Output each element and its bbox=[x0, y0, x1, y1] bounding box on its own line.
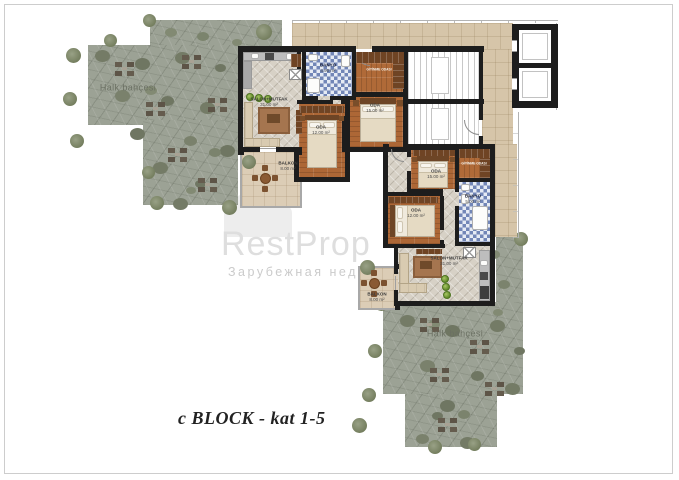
balcony-plant bbox=[242, 155, 256, 169]
toilet bbox=[341, 55, 350, 67]
tree bbox=[66, 48, 81, 63]
room-label-salon-lower: SALON+MUTFAK 31.00 m² bbox=[430, 257, 467, 268]
tree bbox=[143, 14, 156, 27]
wall-segment bbox=[455, 182, 459, 192]
garden-seating bbox=[182, 55, 189, 60]
blanket bbox=[361, 118, 395, 141]
elevator-door bbox=[512, 78, 517, 90]
pillow bbox=[420, 163, 432, 168]
closet bbox=[480, 158, 490, 178]
wall-segment bbox=[407, 149, 411, 157]
closet bbox=[459, 149, 490, 158]
room-area: 4.90 m² bbox=[320, 69, 336, 74]
wall-segment bbox=[455, 178, 492, 182]
wall-segment bbox=[302, 96, 318, 100]
room-label-oda12-upper: ODA 12.00 m² bbox=[312, 126, 330, 137]
nightstand bbox=[450, 157, 455, 162]
wall-segment bbox=[294, 177, 350, 182]
pillow bbox=[434, 163, 446, 168]
wall-segment bbox=[479, 104, 483, 120]
shower bbox=[307, 78, 320, 93]
wall-segment bbox=[455, 242, 492, 246]
room-area: 31.00 m² bbox=[250, 103, 287, 108]
tree bbox=[468, 438, 481, 451]
pillow bbox=[397, 207, 403, 219]
garden-stone-area bbox=[143, 120, 238, 205]
tree bbox=[256, 24, 272, 40]
garden-seating bbox=[146, 102, 153, 107]
appliance bbox=[480, 286, 489, 299]
watermark-brand: RestProp bbox=[221, 227, 371, 261]
wall-segment bbox=[297, 100, 333, 104]
wall-segment bbox=[440, 196, 444, 230]
wall-segment bbox=[408, 46, 484, 52]
room-area: 31.00 m² bbox=[430, 262, 467, 267]
wall-segment bbox=[440, 240, 444, 248]
room-label-oda12-lower: ODA 12.00 m² bbox=[407, 209, 425, 220]
bathroom-sink bbox=[461, 184, 470, 191]
sliding-door bbox=[260, 148, 276, 149]
balcony-chair bbox=[252, 175, 258, 181]
kitchen-sink bbox=[251, 53, 259, 59]
balcony-chair bbox=[381, 280, 387, 286]
stair-landing bbox=[431, 57, 449, 94]
wall-segment bbox=[352, 92, 408, 97]
garden-seating bbox=[115, 62, 122, 67]
wall-segment bbox=[342, 96, 346, 104]
tree bbox=[63, 92, 77, 106]
plant bbox=[441, 275, 449, 283]
garden-seating bbox=[470, 340, 477, 345]
garden-seating bbox=[430, 368, 437, 373]
plan-title: c BLOCK - kat 1-5 bbox=[178, 409, 326, 427]
balcony-table bbox=[260, 173, 271, 184]
wall-segment bbox=[490, 144, 495, 306]
room-label-oda15-lower: ODA 15.00 m² bbox=[427, 170, 445, 181]
elevator-cab-inner bbox=[522, 71, 548, 98]
cabinet bbox=[291, 54, 301, 67]
garden-stone-area bbox=[405, 394, 497, 447]
coffee-table bbox=[267, 114, 280, 123]
garden-seating bbox=[208, 98, 215, 103]
tv-unit bbox=[296, 110, 302, 134]
plant bbox=[442, 283, 450, 291]
stair-landing bbox=[431, 108, 449, 140]
room-label-balkon-upper: BALKON 8.00 m² bbox=[278, 162, 297, 173]
elevator-cab-inner bbox=[522, 33, 548, 60]
nightstand bbox=[300, 116, 305, 121]
garden-seating bbox=[438, 418, 445, 423]
wall-segment bbox=[296, 150, 302, 155]
wall-segment bbox=[238, 150, 244, 155]
bathtub bbox=[472, 206, 488, 230]
bush-cluster bbox=[165, 28, 177, 37]
garden-label: Halk bahçesi bbox=[100, 84, 156, 93]
tree bbox=[142, 166, 155, 179]
tree bbox=[150, 196, 164, 210]
balcony-chair bbox=[371, 270, 377, 276]
nightstand bbox=[397, 100, 403, 106]
floor-plan-canvas: RestProp Зарубежная недвижимость Halk ba… bbox=[0, 0, 679, 480]
bush-cluster bbox=[95, 50, 110, 62]
sofa bbox=[399, 283, 427, 293]
nightstand bbox=[412, 157, 417, 162]
room-label-banyo-upper: BANYO 4.90 m² bbox=[320, 64, 336, 75]
wall-segment bbox=[302, 52, 306, 100]
nightstand bbox=[353, 100, 359, 106]
wall-segment bbox=[455, 206, 459, 246]
balcony-chair bbox=[262, 165, 268, 171]
bush-cluster bbox=[400, 315, 415, 327]
blanket bbox=[308, 134, 336, 167]
room-area: 8.00 m² bbox=[367, 298, 386, 303]
room-label-banyo-lower: BANYO 5.00 m² bbox=[465, 195, 481, 206]
room-area: 12.00 m² bbox=[407, 214, 425, 219]
room-area: 15.00 m² bbox=[427, 175, 445, 180]
bathroom-sink bbox=[308, 54, 318, 61]
room-label-giyinme-upper: GİYİNME ODASI bbox=[366, 68, 391, 72]
wall-segment bbox=[479, 52, 483, 99]
garden-label: Halk bahçesi bbox=[427, 330, 483, 339]
elevator-cab bbox=[519, 30, 551, 63]
tv-unit bbox=[416, 249, 442, 254]
tree bbox=[222, 200, 237, 215]
wall-segment bbox=[394, 248, 398, 274]
room-label-oda15-upper: ODA 15.00 m² bbox=[366, 104, 384, 115]
wall-segment bbox=[383, 144, 388, 248]
tree bbox=[362, 388, 376, 402]
kitchen-sink bbox=[480, 260, 488, 266]
wall-segment bbox=[394, 301, 495, 306]
balcony-table bbox=[369, 278, 380, 289]
pillow bbox=[397, 221, 403, 233]
room-label-balkon-lower: BALKON 8.00 m² bbox=[367, 293, 386, 304]
wall-segment bbox=[403, 99, 484, 104]
room-area: 12.00 m² bbox=[312, 131, 330, 136]
wall-segment bbox=[383, 244, 445, 248]
room-area: 8.00 m² bbox=[278, 167, 297, 172]
tree bbox=[104, 34, 117, 47]
tree bbox=[352, 418, 367, 433]
room-label-giyinme-lower: GİYİNME ODASI bbox=[461, 162, 486, 166]
wardrobe bbox=[300, 106, 344, 113]
kitchen-cabinet bbox=[243, 61, 252, 89]
room-area: 5.00 m² bbox=[465, 200, 481, 205]
wardrobe bbox=[388, 197, 438, 203]
elevator-cab bbox=[519, 68, 551, 101]
sliding-door bbox=[395, 276, 396, 290]
balcony-chair bbox=[272, 175, 278, 181]
sofa bbox=[399, 253, 409, 287]
room-area: 15.00 m² bbox=[366, 109, 384, 114]
stove bbox=[480, 272, 488, 280]
sofa bbox=[244, 138, 280, 147]
corridor bbox=[482, 49, 513, 144]
garden-seating bbox=[198, 178, 205, 183]
terrace-outline bbox=[518, 112, 519, 238]
room-label-salon-upper: SALON+MUTFAK 31.00 m² bbox=[250, 98, 287, 109]
closet bbox=[356, 52, 404, 63]
balcony-chair bbox=[262, 186, 268, 192]
garden-seating bbox=[485, 382, 492, 387]
garden-seating bbox=[168, 148, 175, 153]
tree bbox=[70, 134, 84, 148]
closet bbox=[393, 63, 404, 89]
shaft-duct bbox=[289, 69, 302, 80]
tree bbox=[428, 440, 442, 454]
wall-segment bbox=[395, 305, 400, 310]
plant bbox=[443, 291, 451, 299]
stove bbox=[265, 53, 274, 60]
wall-segment bbox=[383, 192, 443, 196]
tree bbox=[368, 344, 382, 358]
nightstand bbox=[339, 116, 344, 121]
elevator-door bbox=[512, 40, 517, 52]
balcony-chair bbox=[361, 280, 367, 286]
wall-segment bbox=[342, 116, 346, 152]
garden-seating bbox=[420, 318, 427, 323]
